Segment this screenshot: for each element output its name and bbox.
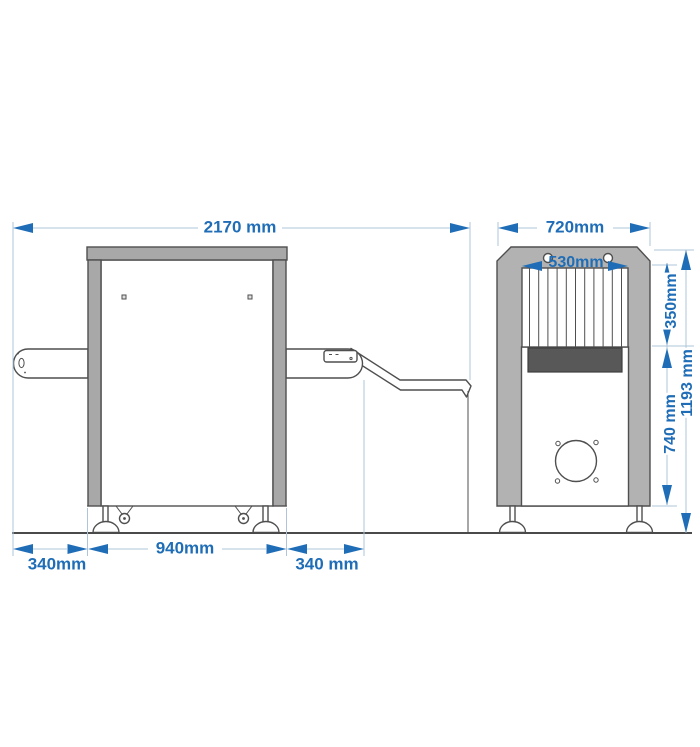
arrowhead [630, 223, 650, 233]
panel-screw [248, 295, 252, 299]
dim-tunnel-width-label: 530mm [548, 255, 603, 271]
end-view-machine [497, 247, 653, 533]
cabinet-top-bar [87, 247, 287, 260]
control-plate [324, 351, 357, 363]
arrowhead [13, 223, 33, 233]
arrowhead [344, 544, 364, 554]
outfeed-conveyor [286, 349, 363, 378]
side-view-feet [93, 506, 279, 533]
arrowhead [681, 513, 691, 533]
dim-overall-width-label: 720mm [542, 219, 609, 236]
arrowhead [662, 485, 672, 505]
conveyor-belt-end [528, 348, 622, 372]
arrowhead [287, 544, 307, 554]
infeed-conveyor [13, 349, 88, 378]
arrowhead [13, 544, 33, 554]
arrowhead [681, 250, 691, 270]
cabinet-left-post [88, 260, 101, 506]
dim-overall-height-label: 1193 mm [678, 348, 698, 418]
arrowhead [267, 544, 287, 554]
cabinet-panel [101, 260, 273, 506]
arrowhead [88, 544, 108, 554]
scanner-cabinet [87, 247, 287, 506]
dome-foot [93, 522, 119, 533]
arrowhead [450, 223, 470, 233]
panel-screw [122, 295, 126, 299]
rivet [24, 372, 26, 374]
arrowhead [498, 223, 518, 233]
side-view-machine [13, 247, 471, 533]
dome-foot [500, 522, 526, 533]
dim-infeed-extension-label: 340mm [28, 556, 87, 573]
technical-drawing-canvas: 2170 mm 720mm 530mm 350mm 740 mm 1193 mm… [0, 0, 700, 747]
dimension-drawing [0, 0, 700, 747]
dim-outfeed-extension-label: 340 mm [295, 556, 358, 573]
exit-ramp [351, 349, 471, 533]
rivet [17, 353, 19, 355]
dim-overall-length-label: 2170 mm [200, 219, 281, 236]
arrowhead [68, 544, 88, 554]
cabinet-right-post [273, 260, 286, 506]
end-view-feet [500, 506, 653, 533]
dim-tunnel-height-label: 350mm [662, 272, 682, 329]
arrowhead [662, 348, 672, 368]
dim-body-length-label: 940mm [152, 540, 219, 557]
dome-foot [253, 522, 279, 533]
dome-foot [627, 522, 653, 533]
